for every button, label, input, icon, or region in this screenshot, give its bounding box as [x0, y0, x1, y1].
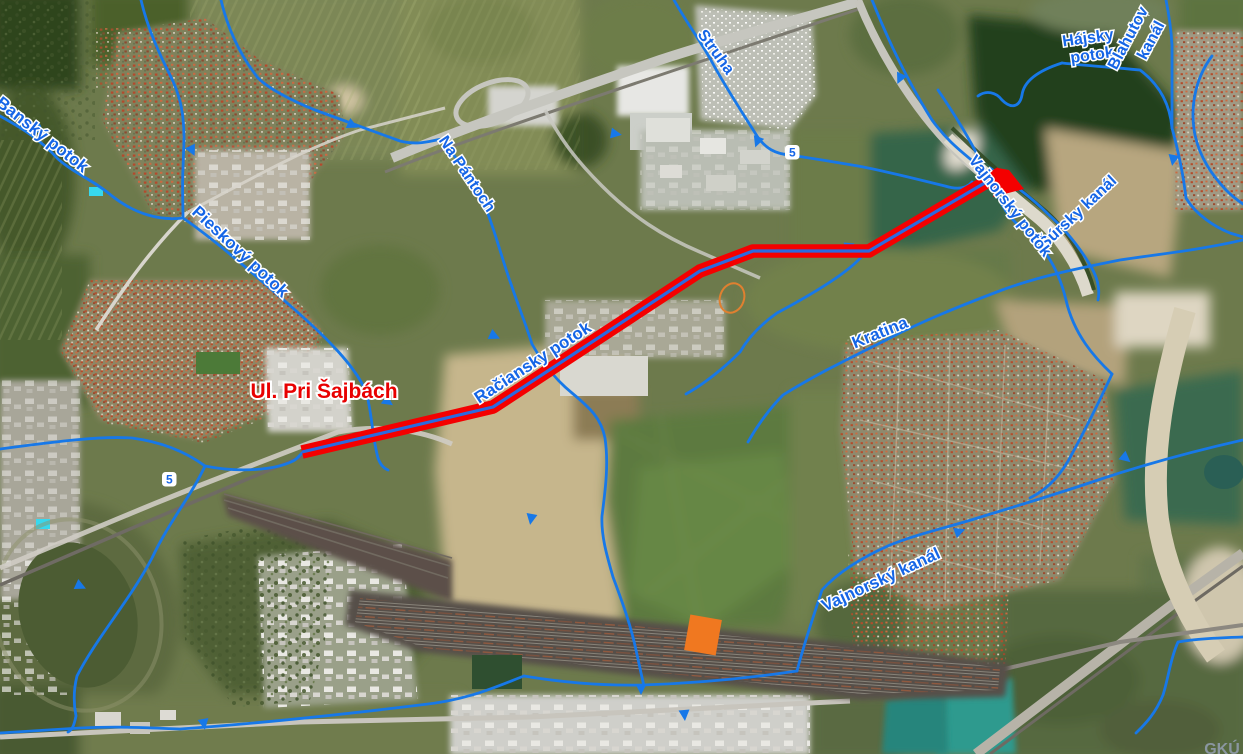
svg-text:5: 5 — [789, 146, 796, 160]
svg-text:GKÚ: GKÚ — [1204, 739, 1240, 754]
svg-text:Ul. Pri Šajbách: Ul. Pri Šajbách — [250, 379, 397, 403]
svg-text:5: 5 — [166, 473, 173, 487]
